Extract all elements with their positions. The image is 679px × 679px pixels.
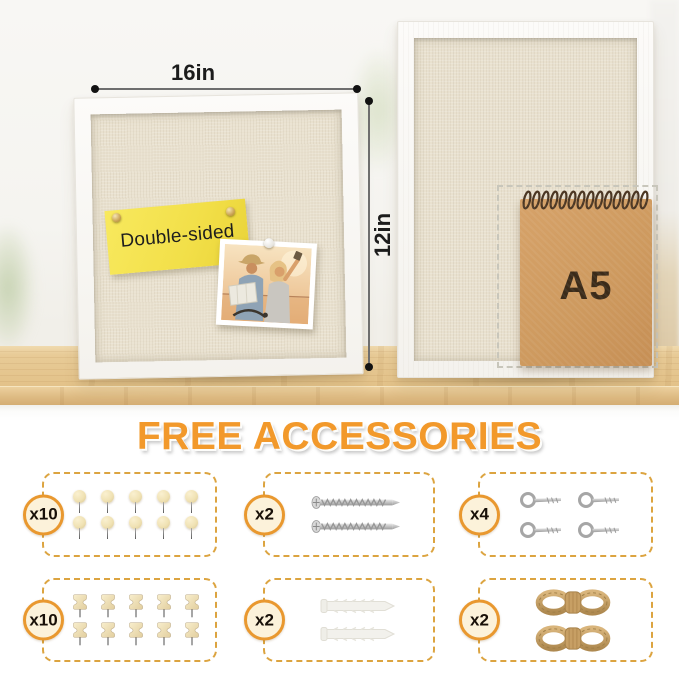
jute-twine-icon	[534, 623, 612, 654]
wooden-ball-pin-icon	[96, 490, 120, 513]
eye-hook-icon	[519, 490, 565, 510]
height-dimension-label: 12in	[370, 211, 396, 259]
count-badge: x10	[23, 600, 64, 641]
wooden-push-pin-icon	[156, 593, 172, 619]
eye-hook-icon	[577, 520, 623, 540]
wooden-ball-pin-icon	[68, 516, 92, 539]
wooden-ball-pin-icon	[152, 516, 176, 539]
brass-pin-icon	[226, 207, 236, 217]
wooden-push-pin-icon	[156, 621, 172, 647]
blurred-plant-left	[0, 225, 34, 350]
front-board-linen-surface: Double-sided	[91, 110, 347, 363]
dimension-endpoint-dot	[365, 97, 373, 105]
screws-group	[310, 495, 402, 534]
count-badge: x2	[459, 600, 500, 641]
wooden-push-pin-icon	[184, 621, 200, 647]
count-label: x2	[255, 505, 274, 525]
wooden-push-pin-icon	[100, 593, 116, 619]
product-image: Double-sided	[0, 0, 679, 679]
wooden-push-pin-icon	[100, 621, 116, 647]
accessory-box-wall-anchors: x2	[263, 578, 435, 662]
count-label: x2	[470, 610, 489, 630]
eye-hook-icon	[577, 490, 623, 510]
wall-anchor-icon	[314, 598, 399, 614]
pinned-photo	[216, 239, 317, 330]
brass-pin-icon	[112, 213, 122, 223]
wooden-ball-pin-icon	[68, 490, 92, 513]
accessory-box-screws: x2	[263, 472, 435, 557]
twine-group	[534, 587, 612, 654]
count-label: x4	[470, 505, 489, 525]
wooden-ball-pin-icon	[124, 490, 148, 513]
count-label: x10	[29, 610, 57, 630]
front-board: Double-sided	[73, 92, 363, 379]
wooden-table-edge	[0, 386, 679, 405]
sticky-note-text: Double-sided	[120, 221, 236, 253]
wooden-push-pin-icon	[72, 593, 88, 619]
jute-twine-icon	[534, 587, 612, 618]
dimension-endpoint-dot	[91, 85, 99, 93]
screw-icon	[310, 519, 402, 534]
couple-photo-image	[221, 244, 312, 324]
push-pins-group	[70, 593, 202, 647]
dimension-endpoint-dot	[353, 85, 361, 93]
photo-scene: Double-sided	[0, 0, 679, 405]
accessory-box-twine: x2	[478, 578, 653, 662]
wooden-ball-pin-icon	[124, 516, 148, 539]
wall-anchor-icon	[314, 626, 399, 642]
ball-pins-group	[67, 490, 205, 539]
count-label: x10	[29, 505, 57, 525]
wooden-push-pin-icon	[184, 593, 200, 619]
accessories-heading: FREE ACCESSORIES	[0, 415, 679, 459]
spiral-binding-icon	[521, 188, 651, 210]
wooden-ball-pin-icon	[96, 516, 120, 539]
wooden-push-pin-icon	[72, 621, 88, 647]
accessories-section: FREE ACCESSORIES x10	[0, 405, 679, 679]
dimension-endpoint-dot	[365, 363, 373, 371]
screw-icon	[310, 495, 402, 510]
accessory-box-ball-pins: x10	[42, 472, 217, 557]
a5-notebook: A5	[520, 199, 652, 366]
notebook-size-label: A5	[559, 256, 612, 309]
width-dimension-label: 16in	[128, 60, 258, 86]
accessory-box-push-pins: x10	[42, 578, 217, 662]
count-badge: x2	[244, 494, 285, 535]
wall-anchors-group	[314, 598, 399, 642]
wooden-ball-pin-icon	[180, 516, 204, 539]
accessory-box-eye-hooks: x4	[478, 472, 653, 557]
width-dimension-line	[95, 88, 357, 90]
wooden-ball-pin-icon	[180, 490, 204, 513]
eye-hook-icon	[519, 520, 565, 540]
wooden-push-pin-icon	[128, 593, 144, 619]
count-badge: x10	[23, 494, 64, 535]
count-badge: x2	[244, 600, 285, 641]
count-badge: x4	[459, 494, 500, 535]
wooden-ball-pin-icon	[152, 490, 176, 513]
white-pin-icon	[263, 238, 273, 248]
count-label: x2	[255, 610, 274, 630]
eye-hooks-group	[518, 490, 624, 540]
wooden-push-pin-icon	[128, 621, 144, 647]
